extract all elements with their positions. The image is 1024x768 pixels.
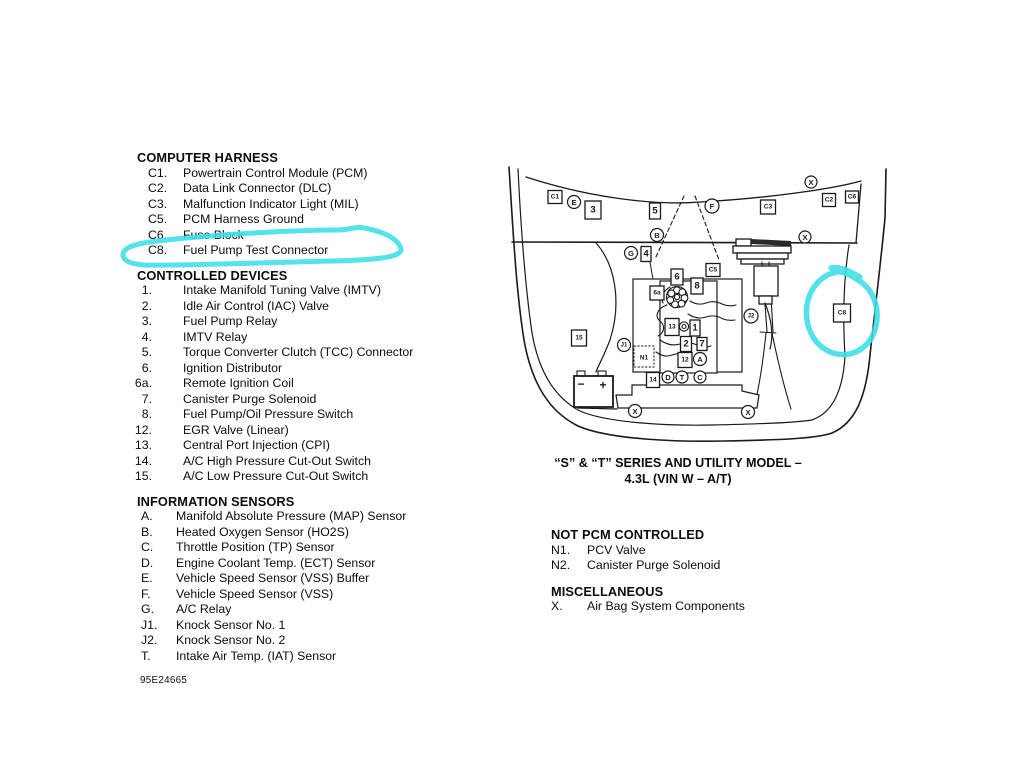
legend-section: COMPUTER HARNESSC1.Powertrain Control Mo… xyxy=(137,150,413,259)
cowl-tab xyxy=(736,239,751,246)
item-number: T. xyxy=(141,649,176,665)
item-text: Fuel Pump/Oil Pressure Switch xyxy=(183,407,353,423)
diagram-caption: “S” & “T” SERIES AND UTILITY MODEL – 4.3… xyxy=(495,456,861,487)
legend-item: C1.Powertrain Control Module (PCM) xyxy=(137,166,413,182)
item-number: E. xyxy=(141,571,176,587)
item-number: N1. xyxy=(551,543,587,559)
item-text: Data Link Connector (DLC) xyxy=(183,181,331,197)
legend-item: 3.Fuel Pump Relay xyxy=(137,314,413,330)
item-number: 6. xyxy=(106,361,152,377)
item-number: C3. xyxy=(148,197,183,213)
item-text: Air Bag System Components xyxy=(587,599,745,615)
item-number: 1. xyxy=(106,283,152,299)
item-text: Fuse Block xyxy=(183,228,244,244)
section-title: CONTROLLED DEVICES xyxy=(137,268,413,284)
item-text: A/C Relay xyxy=(176,602,231,618)
legend-item: C2.Data Link Connector (DLC) xyxy=(137,181,413,197)
marker-label: J2 xyxy=(748,313,755,319)
legend-section: INFORMATION SENSORSA.Manifold Absolute P… xyxy=(137,494,413,665)
item-number: C. xyxy=(141,540,176,556)
legend-item: G.A/C Relay xyxy=(137,602,413,618)
item-text: Canister Purge Solenoid xyxy=(183,392,316,408)
item-text: Engine Coolant Temp. (ECT) Sensor xyxy=(176,556,375,572)
item-number: 14. xyxy=(106,454,152,470)
legend-item: 8.Fuel Pump/Oil Pressure Switch xyxy=(137,407,413,423)
legend-item: 15.A/C Low Pressure Cut-Out Switch xyxy=(137,469,413,485)
bracket-1 xyxy=(733,246,791,253)
legend-section: MISCELLANEOUSX.Air Bag System Components xyxy=(551,584,745,615)
section-title: MISCELLANEOUS xyxy=(551,584,745,600)
marker-label: J1 xyxy=(621,342,628,348)
item-number: D. xyxy=(141,556,176,572)
legend-section: CONTROLLED DEVICES1.Intake Manifold Tuni… xyxy=(137,268,413,485)
marker-label: 2 xyxy=(683,339,688,350)
section-title: COMPUTER HARNESS xyxy=(137,150,413,166)
item-text: Remote Ignition Coil xyxy=(183,376,294,392)
item-text: A/C Low Pressure Cut-Out Switch xyxy=(183,469,368,485)
legend-item: E.Vehicle Speed Sensor (VSS) Buffer xyxy=(137,571,413,587)
item-text: Intake Manifold Tuning Valve (IMTV) xyxy=(183,283,381,299)
item-text: Malfunction Indicator Light (MIL) xyxy=(183,197,359,213)
item-number: A. xyxy=(141,509,176,525)
marker-label: C xyxy=(697,373,703,382)
item-number: 4. xyxy=(106,330,152,346)
marker-label: 4 xyxy=(643,249,649,260)
legend-item: N1.PCV Valve xyxy=(551,543,745,559)
engine-compartment-diagram: − + N1 C135C3C2C64C566a8C813127121514EFB… xyxy=(495,160,907,460)
marker-label: X xyxy=(808,178,813,187)
legend-item: C6.Fuse Block xyxy=(137,228,413,244)
item-text: Canister Purge Solenoid xyxy=(587,558,720,574)
item-number: C6. xyxy=(148,228,183,244)
n1-label: N1 xyxy=(640,355,649,362)
item-text: Ignition Distributor xyxy=(183,361,282,377)
item-number: J1. xyxy=(141,618,176,634)
marker-label: A xyxy=(697,355,703,364)
item-text: Idle Air Control (IAC) Valve xyxy=(183,299,329,315)
item-number: 7. xyxy=(106,392,152,408)
legend-item: J1.Knock Sensor No. 1 xyxy=(137,618,413,634)
item-text: Torque Converter Clutch (TCC) Connector xyxy=(183,345,413,361)
marker-label: 15 xyxy=(575,335,583,342)
legend-item: F.Vehicle Speed Sensor (VSS) xyxy=(137,587,413,603)
legend-item: C5.PCM Harness Ground xyxy=(137,212,413,228)
marker-label: X xyxy=(745,408,750,417)
item-text: Manifold Absolute Pressure (MAP) Sensor xyxy=(176,509,406,525)
item-number: 5. xyxy=(106,345,152,361)
legend-item: A.Manifold Absolute Pressure (MAP) Senso… xyxy=(137,509,413,525)
legend-left: COMPUTER HARNESSC1.Powertrain Control Mo… xyxy=(137,150,413,673)
caption-line-2: 4.3L (VIN W – A/T) xyxy=(495,472,861,488)
column-base xyxy=(760,332,776,333)
item-number: 6a. xyxy=(106,376,152,392)
document-number: 95E24665 xyxy=(140,675,187,686)
legend-item: D.Engine Coolant Temp. (ECT) Sensor xyxy=(137,556,413,572)
item-text: PCV Valve xyxy=(587,543,646,559)
item-number: 2. xyxy=(106,299,152,315)
item-text: Fuel Pump Test Connector xyxy=(183,243,328,259)
marker-label: 3 xyxy=(590,205,595,216)
legend-item: 14.A/C High Pressure Cut-Out Switch xyxy=(137,454,413,470)
column-leg-2 xyxy=(772,333,791,409)
legend-item: C.Throttle Position (TP) Sensor xyxy=(137,540,413,556)
marker-label: C8 xyxy=(838,310,847,317)
item-text: PCM Harness Ground xyxy=(183,212,304,228)
section-title: NOT PCM CONTROLLED xyxy=(551,527,745,543)
battery-plus-label: + xyxy=(599,378,606,392)
legend-item: C8.Fuel Pump Test Connector xyxy=(137,243,413,259)
marker-label: G xyxy=(628,249,634,258)
item-text: Vehicle Speed Sensor (VSS) Buffer xyxy=(176,571,369,587)
marker-label: B xyxy=(654,231,660,240)
legend-item: 4.IMTV Relay xyxy=(137,330,413,346)
item-text: EGR Valve (Linear) xyxy=(183,423,289,439)
item-text: Central Port Injection (CPI) xyxy=(183,438,330,454)
item-text: A/C High Pressure Cut-Out Switch xyxy=(183,454,371,470)
legend-item: 6a.Remote Ignition Coil xyxy=(137,376,413,392)
legend-item: 12.EGR Valve (Linear) xyxy=(137,423,413,439)
item-number: C8. xyxy=(148,243,183,259)
legend-item: 7.Canister Purge Solenoid xyxy=(137,392,413,408)
item-number: C1. xyxy=(148,166,183,182)
battery-tray xyxy=(578,408,617,409)
legend-item: N2.Canister Purge Solenoid xyxy=(551,558,745,574)
item-number: 3. xyxy=(106,314,152,330)
marker-label: 14 xyxy=(649,377,657,384)
battery-minus-label: − xyxy=(577,377,584,391)
legend-item: 5.Torque Converter Clutch (TCC) Connecto… xyxy=(137,345,413,361)
legend-item: 13.Central Port Injection (CPI) xyxy=(137,438,413,454)
item-number: J2. xyxy=(141,633,176,649)
legend-item: T.Intake Air Temp. (IAT) Sensor xyxy=(137,649,413,665)
item-number: N2. xyxy=(551,558,587,574)
marker-label: C3 xyxy=(764,204,773,211)
marker-label: C1 xyxy=(551,194,560,201)
item-text: Knock Sensor No. 2 xyxy=(176,633,285,649)
legend-section: NOT PCM CONTROLLEDN1.PCV ValveN2.Caniste… xyxy=(551,527,745,574)
wheelwell-left xyxy=(596,243,616,372)
item-text: Knock Sensor No. 1 xyxy=(176,618,285,634)
marker-label: 6 xyxy=(674,272,679,283)
marker-label: C5 xyxy=(709,267,718,274)
legend-item: 2.Idle Air Control (IAC) Valve xyxy=(137,299,413,315)
legend-item: C3.Malfunction Indicator Light (MIL) xyxy=(137,197,413,213)
legend-item: J2.Knock Sensor No. 2 xyxy=(137,633,413,649)
item-number: B. xyxy=(141,525,176,541)
item-number: 13. xyxy=(106,438,152,454)
marker-label: C2 xyxy=(825,197,834,204)
item-number: C2. xyxy=(148,181,183,197)
cowl-hatch xyxy=(751,239,791,246)
manual-page: { "page": { "highlight_color": "#3cdfe8"… xyxy=(0,0,1024,768)
bracket-2 xyxy=(737,253,788,259)
item-number: X. xyxy=(551,599,587,615)
item-text: Vehicle Speed Sensor (VSS) xyxy=(176,587,333,603)
marker-label: 8 xyxy=(694,281,700,292)
item-number: 15. xyxy=(106,469,152,485)
item-number: F. xyxy=(141,587,176,603)
item-text: Fuel Pump Relay xyxy=(183,314,277,330)
item-text: IMTV Relay xyxy=(183,330,247,346)
marker-label: 6a xyxy=(653,290,661,297)
marker-label: 13 xyxy=(668,324,676,331)
legend-item: 1.Intake Manifold Tuning Valve (IMTV) xyxy=(137,283,413,299)
booster-body xyxy=(754,266,778,296)
marker-label: 12 xyxy=(681,357,689,364)
legend-item: X.Air Bag System Components xyxy=(551,599,745,615)
item-text: Powertrain Control Module (PCM) xyxy=(183,166,368,182)
marker-label: X xyxy=(802,233,807,242)
legend-right: NOT PCM CONTROLLEDN1.PCV ValveN2.Caniste… xyxy=(551,527,745,625)
item-number: C5. xyxy=(148,212,183,228)
legend-item: 6.Ignition Distributor xyxy=(137,361,413,377)
marker-label: E xyxy=(571,198,576,207)
marker-label: 5 xyxy=(652,206,658,217)
item-number: 8. xyxy=(106,407,152,423)
legend-item: B.Heated Oxygen Sensor (HO2S) xyxy=(137,525,413,541)
marker-label: C6 xyxy=(848,194,857,201)
cap-circle-inner xyxy=(682,325,686,329)
section-title: INFORMATION SENSORS xyxy=(137,494,413,510)
marker-label: 7 xyxy=(699,339,704,350)
distributor xyxy=(667,287,688,308)
marker-label: 1 xyxy=(692,323,698,334)
item-number: G. xyxy=(141,602,176,618)
marker-label: D xyxy=(665,373,671,382)
item-text: Throttle Position (TP) Sensor xyxy=(176,540,335,556)
marker-label: T xyxy=(680,373,685,382)
marker-label: X xyxy=(632,407,637,416)
marker-label: F xyxy=(710,202,715,211)
caption-line-1: “S” & “T” SERIES AND UTILITY MODEL – xyxy=(495,456,861,472)
item-text: Heated Oxygen Sensor (HO2S) xyxy=(176,525,349,541)
item-number: 12. xyxy=(106,423,152,439)
item-text: Intake Air Temp. (IAT) Sensor xyxy=(176,649,336,665)
